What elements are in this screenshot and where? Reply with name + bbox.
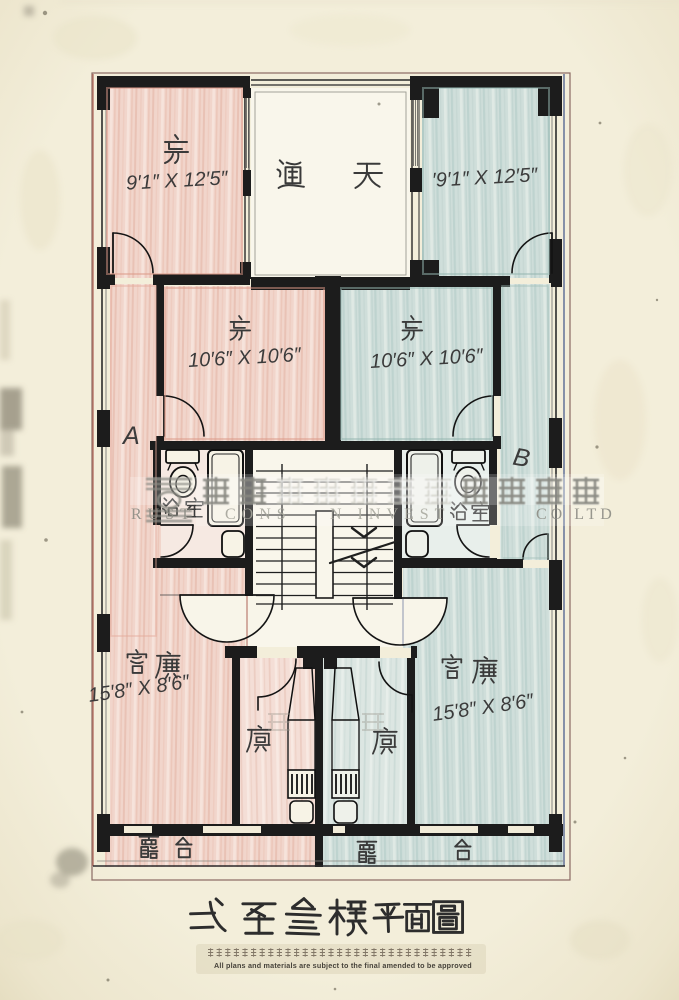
- svg-text:CONS: CONS: [225, 506, 292, 523]
- svg-text:All plans and materials are su: All plans and materials are subject to t…: [214, 961, 472, 970]
- svg-text:CO LTD: CO LTD: [536, 506, 616, 523]
- svg-text:N INVEST: N INVEST: [330, 506, 450, 523]
- svg-text:RUST: RUST: [131, 506, 196, 523]
